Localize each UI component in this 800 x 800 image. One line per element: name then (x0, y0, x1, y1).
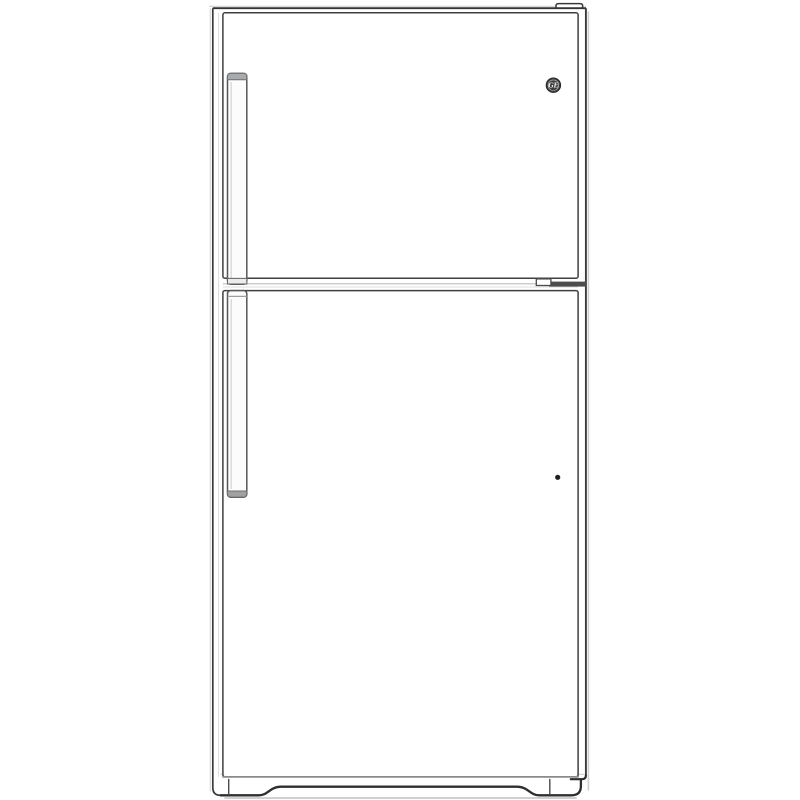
freezer-door-panel (223, 13, 578, 278)
freezer-door: GE (223, 13, 578, 284)
base-kick-plate (221, 776, 586, 796)
refrigerator-line-drawing: GE (0, 0, 800, 800)
handle-mount-block (228, 278, 247, 284)
fresh-food-door-handle (228, 291, 247, 498)
fridge-handle-bottom-cap (228, 491, 247, 497)
ge-logo-text: GE (548, 83, 558, 90)
door-divider (223, 278, 586, 287)
door-indicator-dot (555, 475, 560, 480)
kick-plate-contour (221, 779, 581, 795)
fresh-food-door-panel (223, 291, 578, 777)
ge-monogram-icon: GE (546, 78, 561, 93)
freezer-door-handle (228, 73, 247, 284)
product-image: GE (0, 0, 800, 800)
fresh-food-door (223, 291, 578, 777)
mid-hinge-band (549, 282, 586, 287)
mid-hinge-block (536, 279, 551, 286)
cabinet-left-edge (213, 8, 221, 795)
freezer-handle-top-cap (228, 73, 247, 79)
